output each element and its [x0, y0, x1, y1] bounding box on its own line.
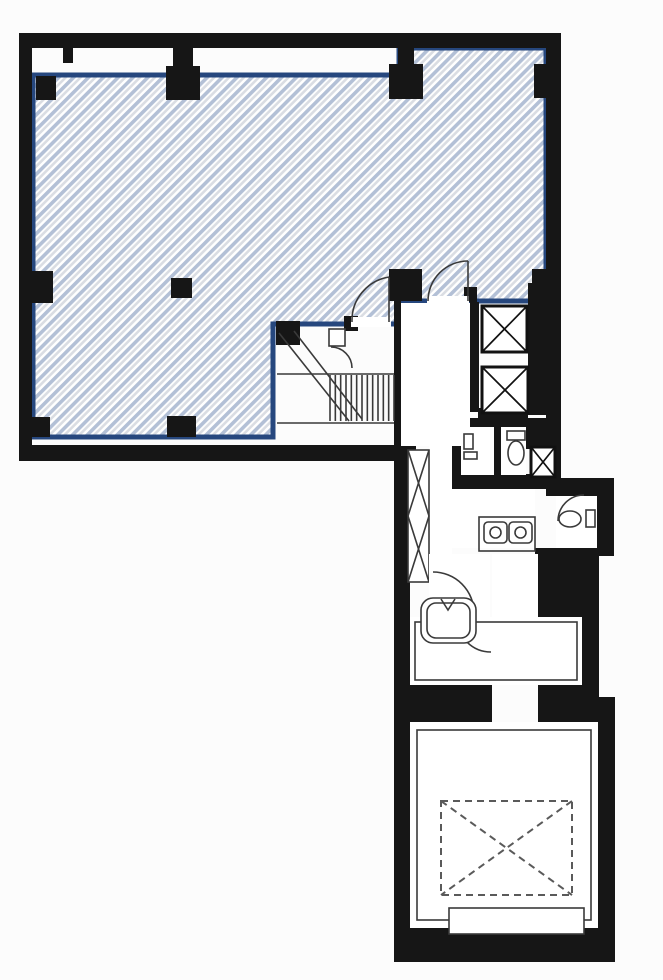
- column: [36, 76, 56, 100]
- column: [171, 278, 192, 298]
- column-stem: [173, 45, 193, 68]
- wall-right-c: [598, 700, 615, 932]
- column: [166, 66, 200, 100]
- column: [167, 416, 196, 437]
- wall-left: [19, 33, 32, 461]
- stair-door-arc: [331, 347, 352, 368]
- column: [389, 269, 422, 301]
- wall-pinch-right: [538, 683, 598, 725]
- wall-hall-west: [394, 301, 401, 447]
- door-opening: [351, 317, 391, 327]
- column: [389, 64, 423, 99]
- wall-right-a: [597, 478, 614, 556]
- wall-below-stallc: [535, 548, 582, 618]
- core-passage: [492, 554, 538, 618]
- sink: [484, 522, 507, 543]
- pipe-shaft: [408, 450, 429, 582]
- stall-fixture: [464, 452, 477, 459]
- floor-plan-canvas: [0, 0, 663, 980]
- wall-stall-divider2: [494, 427, 501, 475]
- wall-stub-top: [63, 46, 73, 63]
- stall-fixture: [464, 434, 473, 449]
- corridor: [429, 446, 452, 554]
- stair-newel-box: [329, 329, 345, 346]
- stair-treads: [330, 375, 394, 421]
- lower-block: [410, 598, 598, 934]
- floor-plan-drawing: [0, 0, 663, 980]
- wall-right-b: [582, 548, 599, 706]
- cistern: [586, 510, 595, 527]
- entrance-step: [449, 908, 584, 934]
- wall-elevator-right: [528, 283, 561, 415]
- wall-pinch-left: [407, 683, 492, 723]
- wall-above-shaftbox: [526, 418, 548, 449]
- door-opening: [427, 296, 469, 306]
- column: [31, 271, 53, 303]
- hall-floor: [401, 303, 470, 446]
- sink: [509, 522, 532, 543]
- column-stem: [398, 40, 414, 66]
- lower-room: [410, 722, 598, 928]
- column: [27, 417, 50, 437]
- wall-upper-bottom: [19, 445, 416, 461]
- cistern: [507, 431, 525, 440]
- basin-unit: [421, 598, 476, 643]
- column: [532, 269, 556, 302]
- wall-elevator-front: [470, 302, 479, 412]
- column: [534, 64, 558, 98]
- wall-top: [20, 33, 560, 48]
